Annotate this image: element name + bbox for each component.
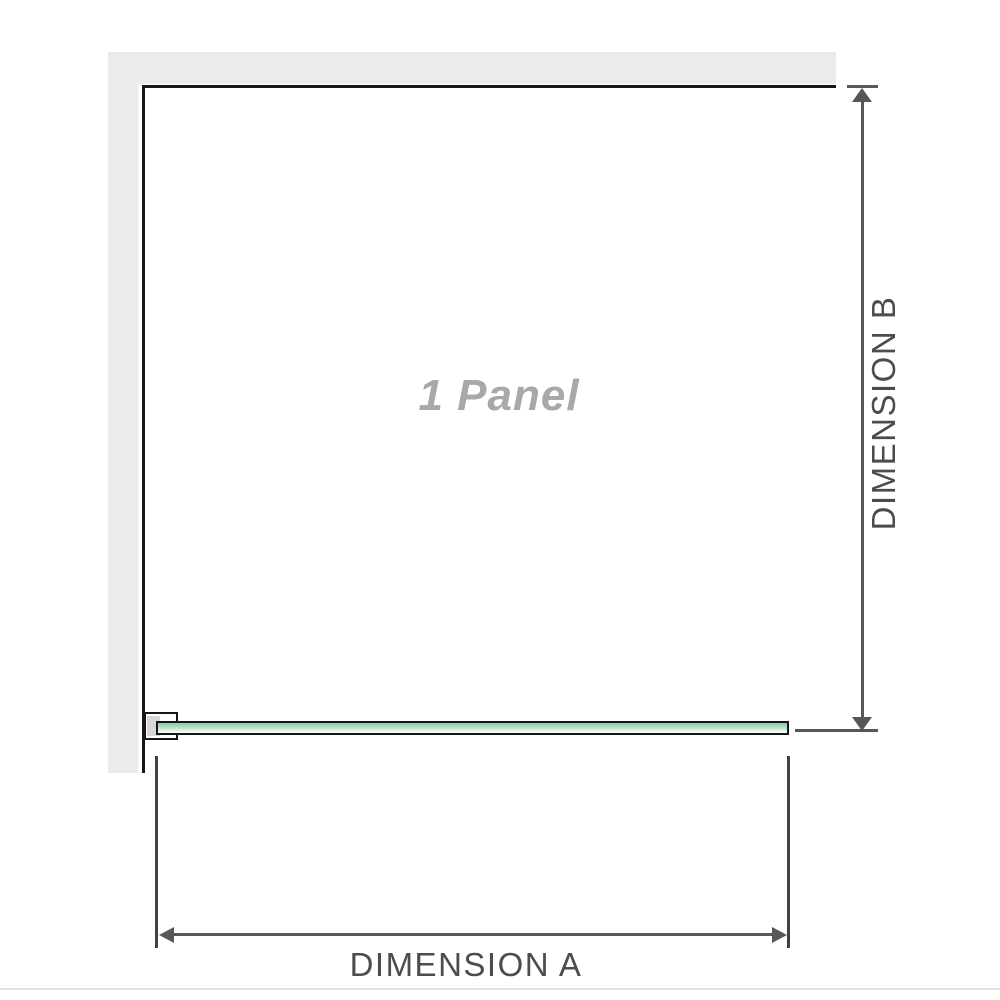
shower-panel-dimension-diagram: 1 Panel DIMENSION B DIMENSION A (0, 0, 1000, 1000)
dimension-a-left-extension-line (155, 756, 158, 948)
dimension-b-label: DIMENSION B (865, 296, 903, 531)
panel-label: 1 Panel (299, 371, 699, 421)
bottom-separator-line (0, 988, 1000, 990)
wall-top-bar (108, 52, 836, 84)
panel-top-edge-line (142, 85, 836, 88)
dimension-a-line (163, 933, 783, 936)
arrow-right-icon (772, 927, 787, 943)
glass-panel-bar (156, 721, 789, 735)
panel-left-edge-line (142, 85, 145, 773)
dimension-a-right-extension-line (787, 756, 790, 948)
dimension-b-line (861, 99, 864, 719)
arrow-left-icon (159, 927, 174, 943)
arrow-up-icon (852, 88, 872, 102)
arrow-down-icon (852, 717, 872, 731)
wall-left-bar (108, 52, 138, 773)
dimension-a-label: DIMENSION A (216, 946, 716, 984)
